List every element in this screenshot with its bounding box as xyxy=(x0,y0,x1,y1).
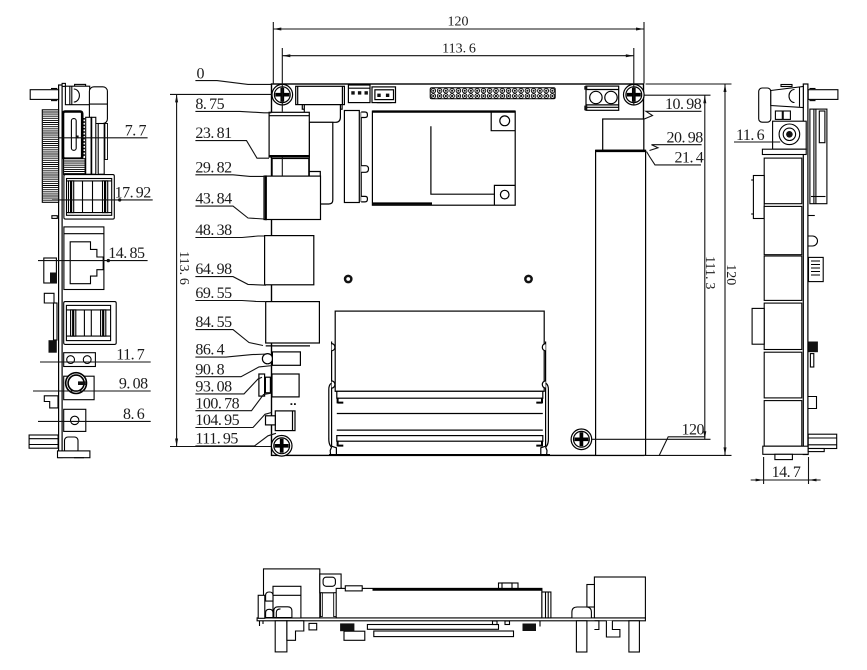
svg-text:8. 75: 8. 75 xyxy=(195,96,224,113)
svg-text:120: 120 xyxy=(448,15,469,30)
svg-text:14. 85: 14. 85 xyxy=(108,245,145,262)
svg-text:48. 38: 48. 38 xyxy=(195,222,232,239)
svg-text:84. 55: 84. 55 xyxy=(195,314,232,331)
svg-text:86. 4: 86. 4 xyxy=(195,342,224,359)
svg-text:113. 6: 113. 6 xyxy=(442,41,476,56)
svg-text:8. 6: 8. 6 xyxy=(123,406,145,423)
svg-text:0: 0 xyxy=(197,65,205,82)
svg-text:43. 84: 43. 84 xyxy=(195,191,232,208)
svg-text:100. 78: 100. 78 xyxy=(195,395,239,412)
svg-text:64. 98: 64. 98 xyxy=(195,261,232,278)
svg-text:11. 6: 11. 6 xyxy=(736,127,765,144)
svg-text:14. 7: 14. 7 xyxy=(772,464,801,481)
svg-text:7. 7: 7. 7 xyxy=(125,122,147,139)
svg-text:21. 4: 21. 4 xyxy=(675,150,704,167)
svg-text:11. 7: 11. 7 xyxy=(116,347,145,364)
svg-text:93. 08: 93. 08 xyxy=(195,379,232,396)
svg-text:113. 6: 113. 6 xyxy=(176,251,191,285)
svg-text:120: 120 xyxy=(682,421,705,438)
svg-text:10. 98: 10. 98 xyxy=(665,96,702,113)
svg-text:104. 95: 104. 95 xyxy=(195,412,239,429)
svg-text:90. 8: 90. 8 xyxy=(195,361,224,378)
svg-text:111. 95: 111. 95 xyxy=(195,431,238,448)
svg-text:23. 81: 23. 81 xyxy=(195,125,232,142)
svg-text:120: 120 xyxy=(723,264,738,285)
svg-text:111. 3: 111. 3 xyxy=(702,256,717,289)
svg-text:20. 98: 20. 98 xyxy=(667,129,704,146)
svg-text:29. 82: 29. 82 xyxy=(195,159,232,176)
svg-text:69. 55: 69. 55 xyxy=(195,285,232,302)
svg-text:9. 08: 9. 08 xyxy=(119,376,148,393)
